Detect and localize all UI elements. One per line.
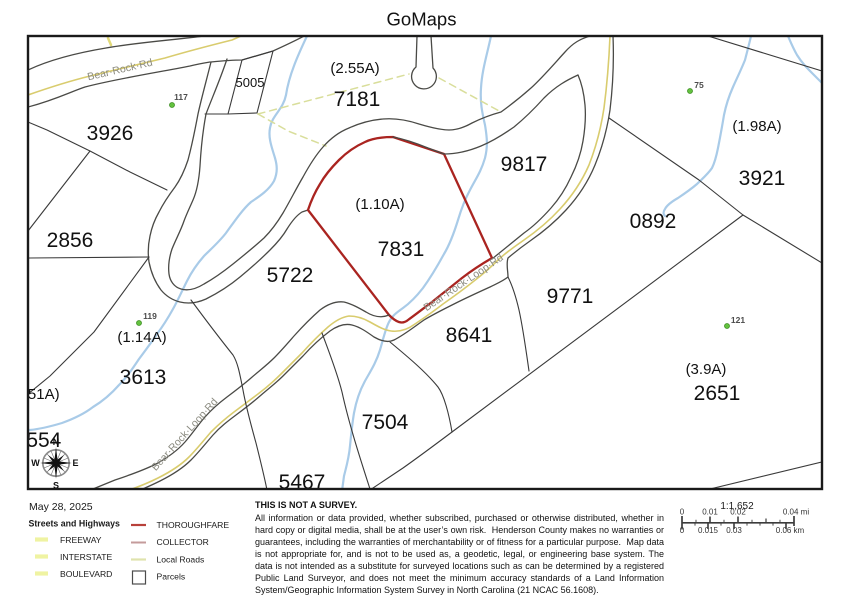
svg-text:E: E xyxy=(72,458,78,468)
svg-text:Bear·Rock·Loop·Rd: Bear·Rock·Loop·Rd xyxy=(421,252,505,314)
svg-text:Local Roads: Local Roads xyxy=(157,555,205,565)
svg-text:0: 0 xyxy=(680,526,685,535)
svg-text:(1.51A): (1.51A) xyxy=(10,386,59,403)
svg-text:(1.98A): (1.98A) xyxy=(732,118,781,135)
svg-text:May 28, 2025: May 28, 2025 xyxy=(29,501,93,513)
svg-text:0892: 0892 xyxy=(630,210,677,233)
svg-text:BOULEVARD: BOULEVARD xyxy=(60,569,112,579)
svg-text:0.015: 0.015 xyxy=(698,526,719,535)
svg-text:7181: 7181 xyxy=(334,88,381,111)
svg-text:INTERSTATE: INTERSTATE xyxy=(60,552,112,562)
svg-text:0.01: 0.01 xyxy=(702,508,718,517)
svg-text:(2.55A): (2.55A) xyxy=(330,60,379,77)
svg-text:2856: 2856 xyxy=(47,229,94,252)
svg-text:3926: 3926 xyxy=(87,122,134,145)
svg-text:3921: 3921 xyxy=(739,167,786,190)
svg-text:5467: 5467 xyxy=(279,471,326,494)
svg-text:(3.9A): (3.9A) xyxy=(686,361,727,378)
svg-text:(1.14A): (1.14A) xyxy=(117,329,166,346)
svg-text:7831: 7831 xyxy=(378,238,425,261)
svg-text:Parcels: Parcels xyxy=(157,571,186,581)
svg-text:0.03: 0.03 xyxy=(726,526,742,535)
svg-text:0.04 mi: 0.04 mi xyxy=(783,508,809,517)
svg-text:COLLECTOR: COLLECTOR xyxy=(157,537,209,547)
svg-text:7504: 7504 xyxy=(362,411,409,434)
svg-text:9771: 9771 xyxy=(547,285,594,308)
svg-text:THOROUGHFARE: THOROUGHFARE xyxy=(157,520,230,530)
svg-text:5722: 5722 xyxy=(267,264,314,287)
svg-text:0: 0 xyxy=(680,508,685,517)
svg-text:2651: 2651 xyxy=(694,382,741,405)
svg-text:0.02: 0.02 xyxy=(730,508,746,517)
svg-text:GoMaps: GoMaps xyxy=(387,9,457,30)
svg-text:75: 75 xyxy=(694,80,704,90)
svg-text:5005: 5005 xyxy=(236,75,265,90)
svg-text:Streets and Highways: Streets and Highways xyxy=(29,519,121,529)
svg-text:121: 121 xyxy=(731,315,745,325)
svg-text:0.06 km: 0.06 km xyxy=(776,526,805,535)
svg-text:(1.10A): (1.10A) xyxy=(355,196,404,213)
svg-text:117: 117 xyxy=(174,92,188,102)
svg-text:N: N xyxy=(53,437,60,447)
svg-text:8641: 8641 xyxy=(446,324,493,347)
svg-text:9817: 9817 xyxy=(501,153,548,176)
svg-text:W: W xyxy=(31,458,40,468)
svg-text:119: 119 xyxy=(143,311,157,321)
svg-text:FREEWAY: FREEWAY xyxy=(60,535,102,545)
svg-text:3613: 3613 xyxy=(120,366,167,389)
